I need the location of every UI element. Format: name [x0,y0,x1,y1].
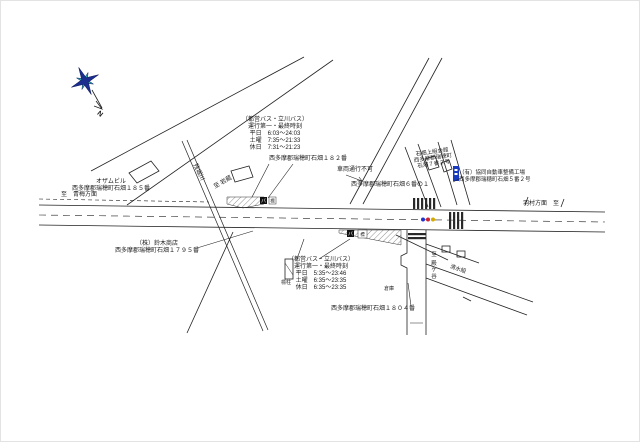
svg-text:バ: バ [261,199,266,205]
compass-rose-icon [71,67,102,109]
traffic-signal-icon [421,218,435,222]
main-road [39,197,605,232]
direction-label-ome: 至 青梅方面 [61,192,97,199]
no-vehicles-label: 車両通行不可 [337,167,373,174]
address-1804-label: 西多摩郡瑞穂町石畑１８０４番 [331,306,415,313]
address-182-label: 西多摩郡瑞穂町石畑１８２番 [269,156,347,163]
north-bus-weekday-hours: 平日 6:03〜24:03 [231,131,319,138]
site-plan-svg: バ 標 バ 標 [1,1,640,442]
north-bus-schedule-block: （都営バス・立川バス） 運行第一・最終時刻 平日 6:03〜24:03 土曜 7… [231,117,319,152]
north-bus-saturday-hours: 土曜 7:35〜21:33 [231,138,319,145]
warehouse-label: 倉庫 [384,286,394,293]
suzuki-address-label: 西多摩郡瑞穂町石畑１７９５番 [107,248,207,255]
south-bus-weekday-hours: 平日 5:35〜23:46 [275,271,367,278]
svg-text:標: 標 [270,198,275,205]
auto-shop-label: （有）協同自動車整備工場 [459,170,531,177]
south-bus-operator: （都営バス・立川バス） [275,257,367,264]
pole-label: 標柱 [281,280,291,287]
auto-shop-address-label: 西多摩郡瑞穂町石畑５番２号 [459,177,531,184]
north-bus-schedule-title: 運行第一・最終時刻 [231,124,319,131]
north-bus-operator: （都営バス・立川バス） [231,117,319,124]
ozam-building-label: オザムビル [71,179,151,186]
ozam-building-block: オザムビル 西多摩郡瑞穂町石畑１８５番 [71,179,151,193]
south-bus-schedule-title: 運行第一・最終時刻 [275,264,367,271]
ozam-address-label: 西多摩郡瑞穂町石畑１８５番 [71,186,151,193]
auto-shop-block: （有）協同自動車整備工場 西多摩郡瑞穂町石畑５番２号 [459,170,531,183]
direction-label-tonogaya: 至 殿ケ谷 [429,251,436,280]
suzuki-company-label: （株）鈴木商店 [107,241,207,248]
svg-text:バ: バ [348,232,353,238]
address-6-1-label: 西多摩郡瑞穂町石畑６番の１ [351,182,429,189]
bus-bays [227,197,401,245]
site-plan-canvas: バ 標 バ 標 [0,0,640,442]
direction-label-hamura: 羽村方面 至 [523,201,559,208]
suzuki-company-block: （株）鈴木商店 西多摩郡瑞穂町石畑１７９５番 [107,241,207,255]
svg-text:標: 標 [360,231,365,238]
north-bus-holiday-hours: 休日 7:31〜21:23 [231,145,319,152]
bus-stop-sign-north-icon: バ 標 [260,197,276,205]
